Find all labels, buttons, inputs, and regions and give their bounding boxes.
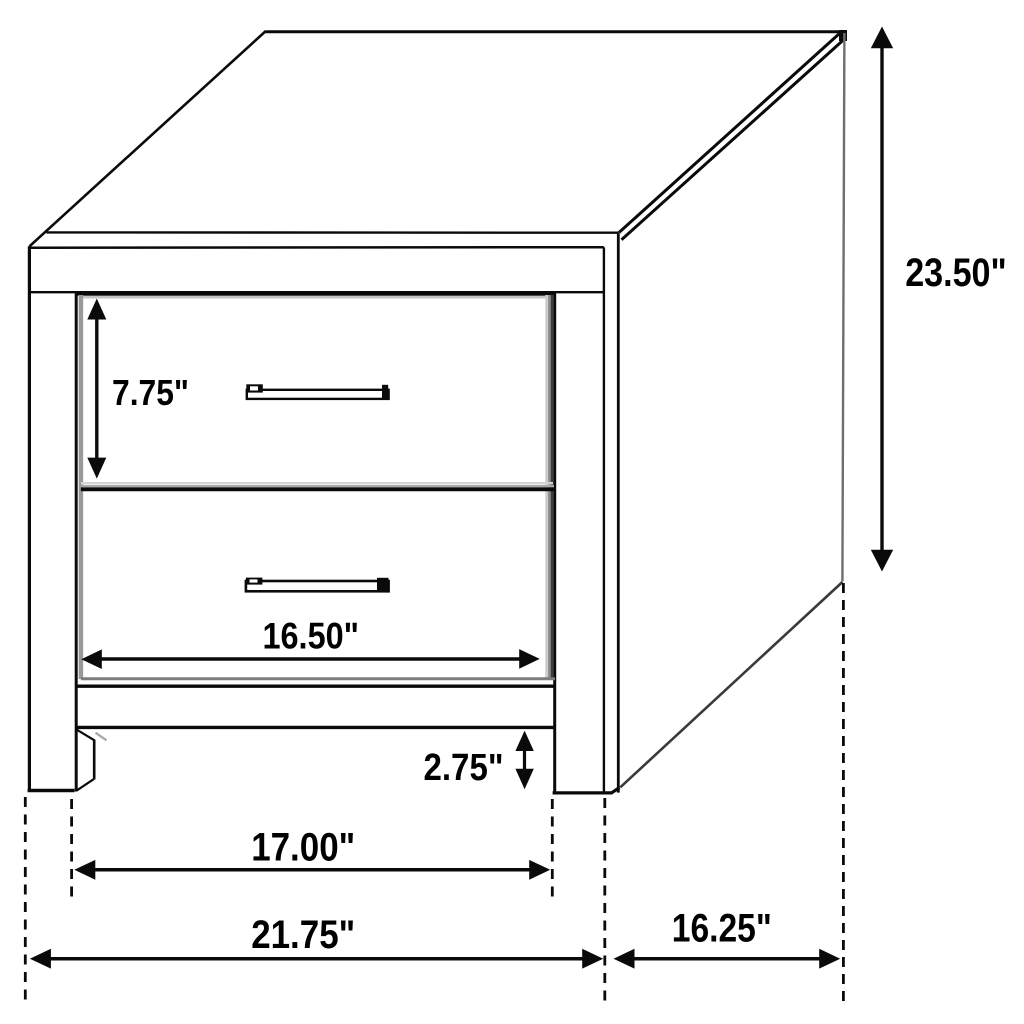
svg-text:23.50": 23.50" [905,251,1007,295]
svg-text:21.75": 21.75" [251,913,355,957]
svg-text:2.75": 2.75" [424,747,504,789]
svg-text:16.25": 16.25" [672,907,772,951]
svg-text:16.50": 16.50" [263,615,360,656]
svg-text:17.00": 17.00" [251,826,355,870]
svg-text:7.75": 7.75" [112,372,189,413]
